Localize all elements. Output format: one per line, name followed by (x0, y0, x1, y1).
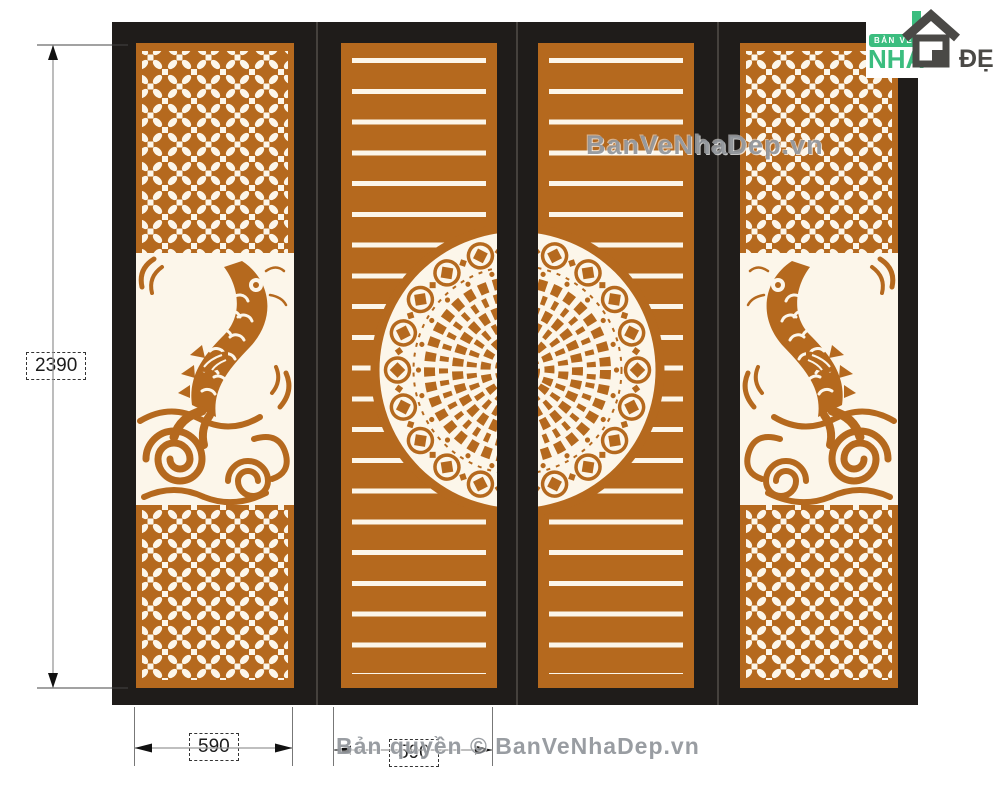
height-dimension-label: 2390 (26, 352, 86, 380)
mandala-left-half (341, 43, 497, 688)
door-panel-1-lattice-koi (136, 43, 294, 688)
door-panel-2-slats-mandala (341, 43, 497, 688)
leaf-seam (717, 22, 719, 705)
watermark-copyright: Bản quyền © BanVeNhaDep.vn (336, 733, 700, 760)
lattice-koi-art (136, 43, 294, 688)
door1-width-dimension-label: 590 (189, 733, 239, 761)
leaf-seam (316, 22, 318, 705)
leaf-seam (516, 22, 518, 705)
logo-word-dep: ĐẸP (959, 45, 994, 74)
drawing-canvas: 2390 590 590 BanVeNhaDep.vn Bản quyền © … (0, 0, 994, 785)
site-logo: BẢN VẼ NHÀ ĐẸP (866, 8, 994, 78)
house-icon (900, 8, 962, 72)
watermark-center: BanVeNhaDep.vn (586, 130, 824, 161)
